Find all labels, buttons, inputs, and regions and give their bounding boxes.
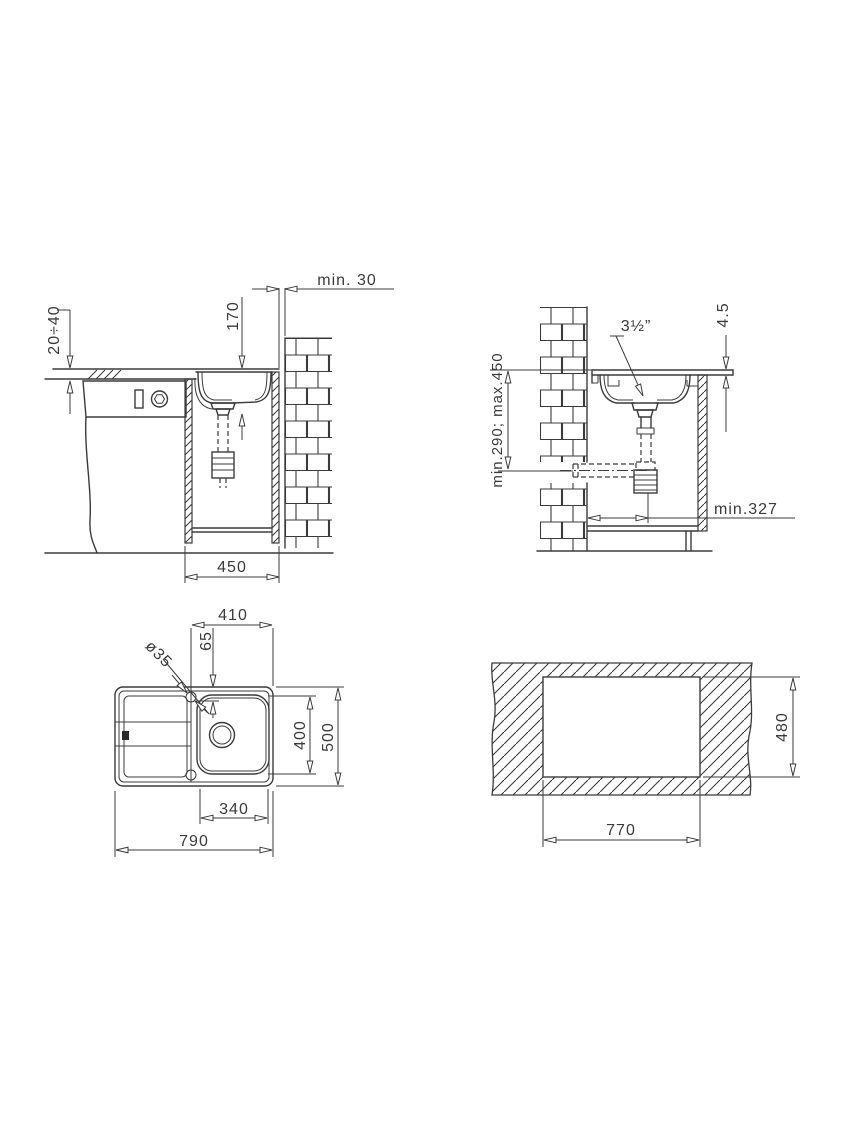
dim-cutout-depth-label: 480: [774, 712, 791, 742]
dim-tap-hole-offset-label: 65: [198, 631, 215, 651]
sink-bowl-side: [600, 375, 690, 417]
dim-bowl-length: 400: [268, 696, 316, 774]
side-section-view: 3½” 4.5 min.290; max.450 min.327: [489, 302, 795, 551]
top-view: 410 65 ø35 400 500: [115, 607, 344, 857]
technical-drawing-page: min. 30 170 20÷40 450: [0, 0, 850, 1129]
fastening-clip-left: [608, 375, 619, 386]
dim-rim-height: 4.5: [715, 302, 732, 432]
dim-bowl-inner-length: 340: [200, 789, 268, 824]
front-section-view: min. 30 170 20÷40 450: [45, 272, 394, 583]
dim-tap-hole-diameter-label: ø35: [142, 638, 176, 672]
dim-sink-width-label: 500: [320, 722, 337, 752]
cutout-view: 480 770: [492, 663, 800, 847]
dim-cabinet-width: 450: [185, 546, 279, 583]
drainer-area: [124, 696, 187, 777]
overflow-pipe: [195, 378, 212, 409]
sink-inner-rim: [119, 691, 269, 782]
dim-bowl-inner-length-label: 340: [219, 801, 249, 818]
dim-drain-wall-distance: min.327: [588, 501, 795, 518]
bowl-drain-inner: [213, 726, 231, 744]
dim-bowl-depth-label: 170: [225, 301, 242, 331]
dim-bowl-zone-width-label: 410: [218, 607, 248, 624]
dim-drain-wall-distance-label: min.327: [714, 501, 778, 518]
drain-elbow: [636, 462, 655, 470]
sink-installation-diagram: min. 30 170 20÷40 450: [0, 0, 850, 1129]
appliance-front: [83, 381, 186, 553]
dim-rim-height-label: 4.5: [715, 302, 732, 327]
cutout-opening: [543, 677, 700, 777]
dim-wall-gap-label: min. 30: [317, 272, 376, 289]
appliance-slot: [135, 390, 143, 408]
dim-bowl-length-label: 400: [292, 720, 309, 750]
dim-cutout-width-label: 770: [606, 822, 636, 839]
channel-drain-mark: [122, 731, 129, 740]
dim-worktop-thickness-label: 20÷40: [46, 305, 63, 354]
sink-rim-side: [592, 370, 733, 386]
brick-wall-side: [540, 307, 587, 551]
sink-bowl-section: [195, 372, 272, 488]
dim-drain-diameter: 3½”: [610, 318, 651, 396]
sink-top-view: [115, 687, 273, 786]
dim-worktop-thickness: 20÷40: [46, 305, 70, 414]
dim-sink-length-label: 790: [179, 833, 209, 850]
appliance-knob: [152, 391, 168, 407]
drain-flange: [211, 403, 235, 409]
drain-coupling: [212, 452, 234, 488]
bowl-outer: [197, 695, 269, 774]
dim-sink-length: 790: [115, 791, 273, 857]
brick-wall: [285, 338, 332, 548]
worktop-section: [45, 369, 279, 379]
dim-drain-diameter-label: 3½”: [621, 318, 652, 335]
dim-drain-outlet-height-label: min.290; max.450: [489, 352, 506, 487]
dim-cabinet-width-label: 450: [217, 559, 247, 576]
siphon-cup: [634, 470, 657, 493]
